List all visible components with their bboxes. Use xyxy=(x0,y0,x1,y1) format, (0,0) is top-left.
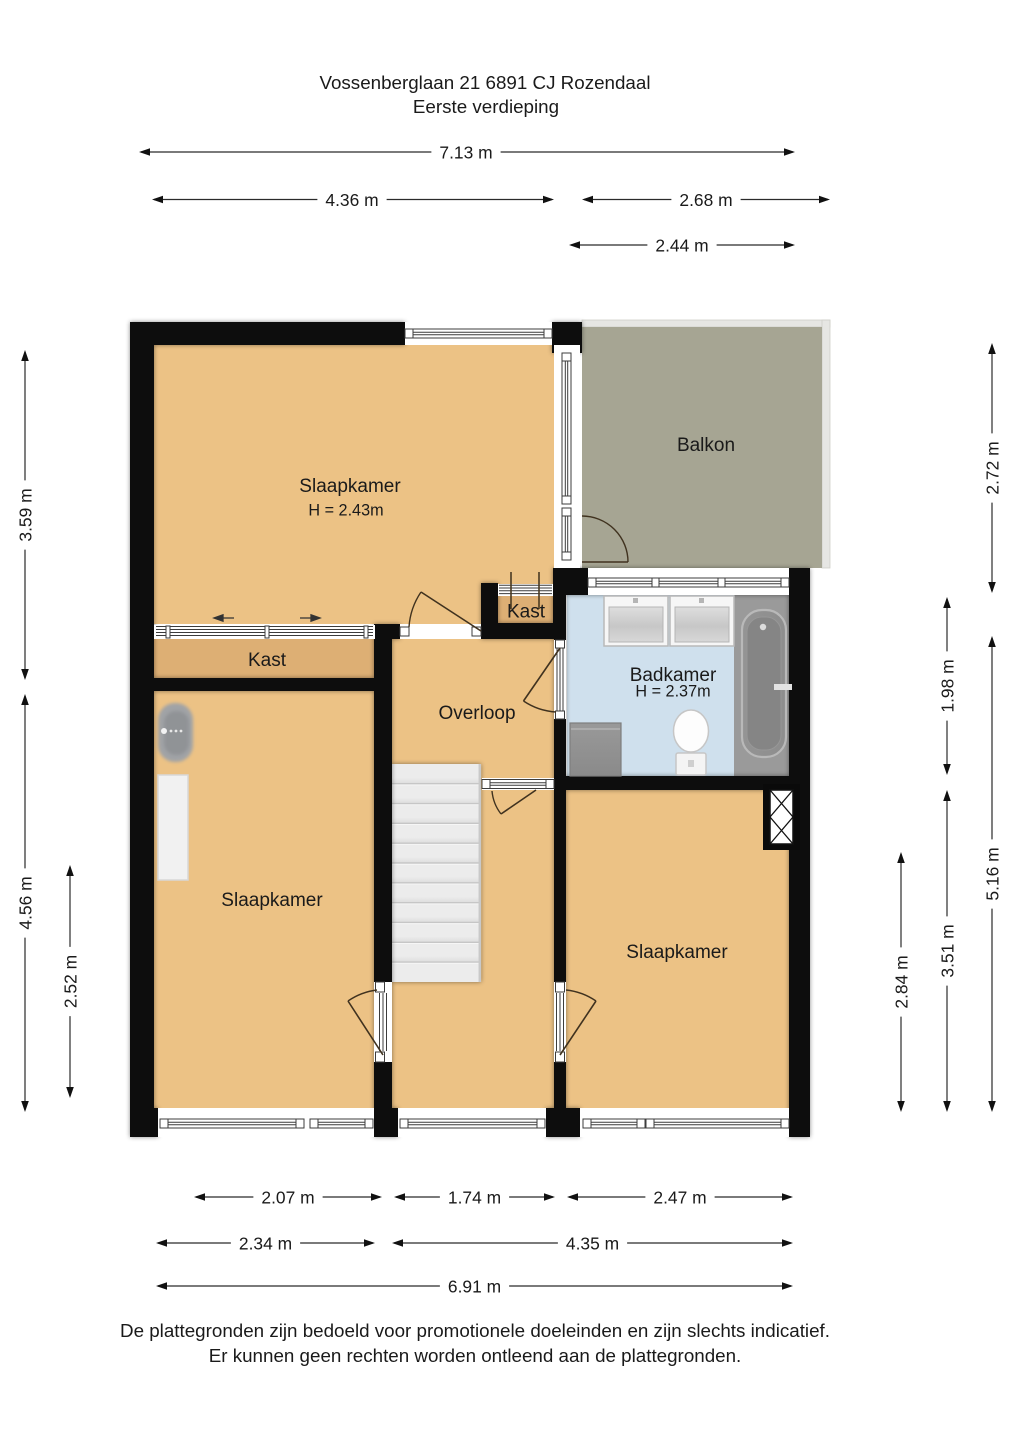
svg-text:1.98 m: 1.98 m xyxy=(937,659,957,712)
svg-text:2.47 m: 2.47 m xyxy=(653,1187,706,1207)
svg-text:Eerste verdieping: Eerste verdieping xyxy=(413,96,559,117)
svg-text:2.07 m: 2.07 m xyxy=(261,1187,314,1207)
svg-text:1.74 m: 1.74 m xyxy=(448,1187,501,1207)
svg-text:De plattegronden zijn bedoeld: De plattegronden zijn bedoeld voor promo… xyxy=(120,1320,830,1341)
svg-text:H = 2.37m: H = 2.37m xyxy=(635,683,710,701)
svg-text:Er kunnen geen rechten worden: Er kunnen geen rechten worden ontleend a… xyxy=(209,1345,742,1366)
svg-text:Slaapkamer: Slaapkamer xyxy=(626,942,728,963)
svg-text:2.44 m: 2.44 m xyxy=(655,235,708,255)
svg-text:2.34 m: 2.34 m xyxy=(239,1233,292,1253)
svg-text:2.72 m: 2.72 m xyxy=(982,441,1002,494)
svg-text:Overloop: Overloop xyxy=(438,703,515,724)
svg-text:Balkon: Balkon xyxy=(677,435,735,456)
svg-text:7.13 m: 7.13 m xyxy=(439,142,492,162)
svg-text:4.56 m: 4.56 m xyxy=(15,876,35,929)
svg-text:2.52 m: 2.52 m xyxy=(60,955,80,1008)
svg-text:6.91 m: 6.91 m xyxy=(448,1276,501,1296)
svg-text:3.59 m: 3.59 m xyxy=(15,488,35,541)
svg-text:4.35 m: 4.35 m xyxy=(566,1233,619,1253)
svg-text:Vossenberglaan 21 6891 CJ Roze: Vossenberglaan 21 6891 CJ Rozendaal xyxy=(319,72,650,93)
svg-text:Kast: Kast xyxy=(507,602,546,623)
svg-text:H = 2.43m: H = 2.43m xyxy=(308,502,383,520)
svg-text:2.84 m: 2.84 m xyxy=(891,955,911,1008)
svg-text:Slaapkamer: Slaapkamer xyxy=(221,890,323,911)
svg-text:4.36 m: 4.36 m xyxy=(325,190,378,210)
svg-text:Slaapkamer: Slaapkamer xyxy=(299,476,401,497)
svg-text:2.68 m: 2.68 m xyxy=(679,190,732,210)
svg-text:5.16 m: 5.16 m xyxy=(982,847,1002,900)
svg-text:Kast: Kast xyxy=(248,650,287,671)
svg-text:3.51 m: 3.51 m xyxy=(937,924,957,977)
